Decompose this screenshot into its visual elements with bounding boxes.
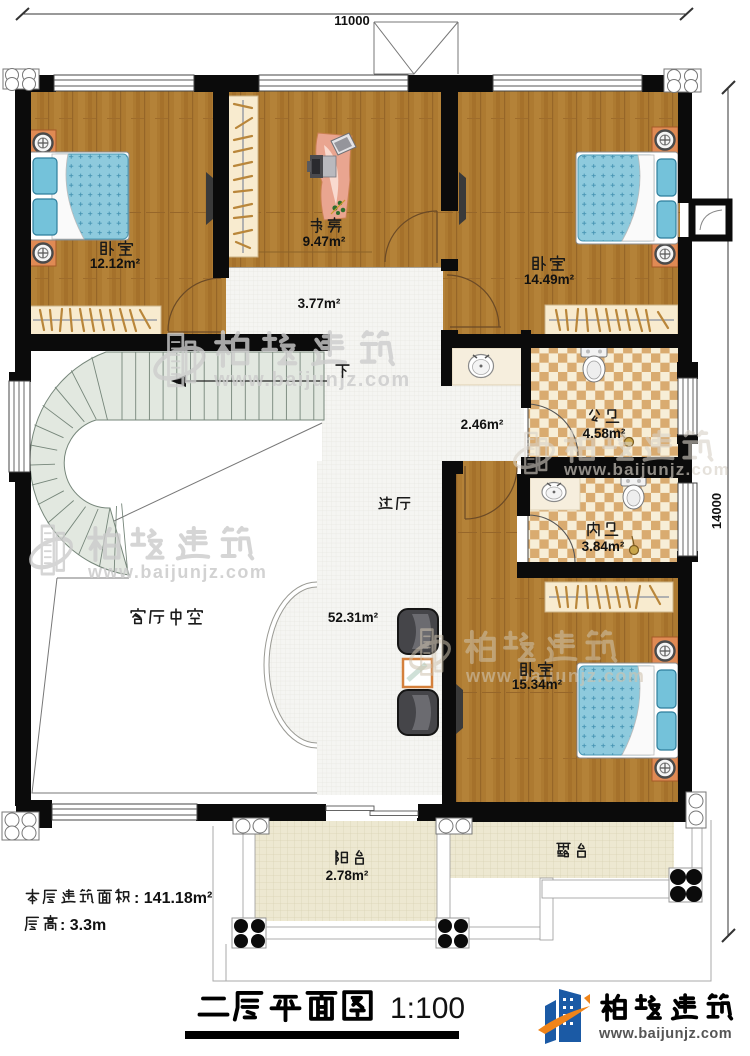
svg-text:1:100: 1:100	[390, 992, 465, 1025]
svg-text:3.84m²: 3.84m²	[582, 539, 625, 554]
svg-text:2.46m²: 2.46m²	[461, 417, 504, 432]
svg-text:www.baijunjz.com: www.baijunjz.com	[213, 369, 411, 391]
svg-text:15.34m²: 15.34m²	[512, 677, 563, 692]
svg-text:: 141.18m²: : 141.18m²	[134, 890, 212, 907]
svg-text:52.31m²: 52.31m²	[328, 610, 379, 625]
svg-text:9.47m²: 9.47m²	[303, 234, 346, 249]
svg-text:www.baijunjz.com: www.baijunjz.com	[87, 562, 267, 582]
svg-text:14000: 14000	[709, 493, 724, 529]
svg-text:14.49m²: 14.49m²	[524, 272, 575, 287]
svg-text:: 3.3m: : 3.3m	[60, 917, 106, 934]
svg-text:11000: 11000	[334, 13, 369, 28]
svg-text:4.58m²: 4.58m²	[583, 426, 626, 441]
svg-text:www.baijunjz.com: www.baijunjz.com	[598, 1026, 732, 1042]
svg-text:2.78m²: 2.78m²	[326, 868, 369, 883]
svg-text:www.baijunjz.com: www.baijunjz.com	[563, 460, 730, 479]
svg-text:12.12m²: 12.12m²	[90, 256, 141, 271]
svg-text:3.77m²: 3.77m²	[298, 296, 341, 311]
